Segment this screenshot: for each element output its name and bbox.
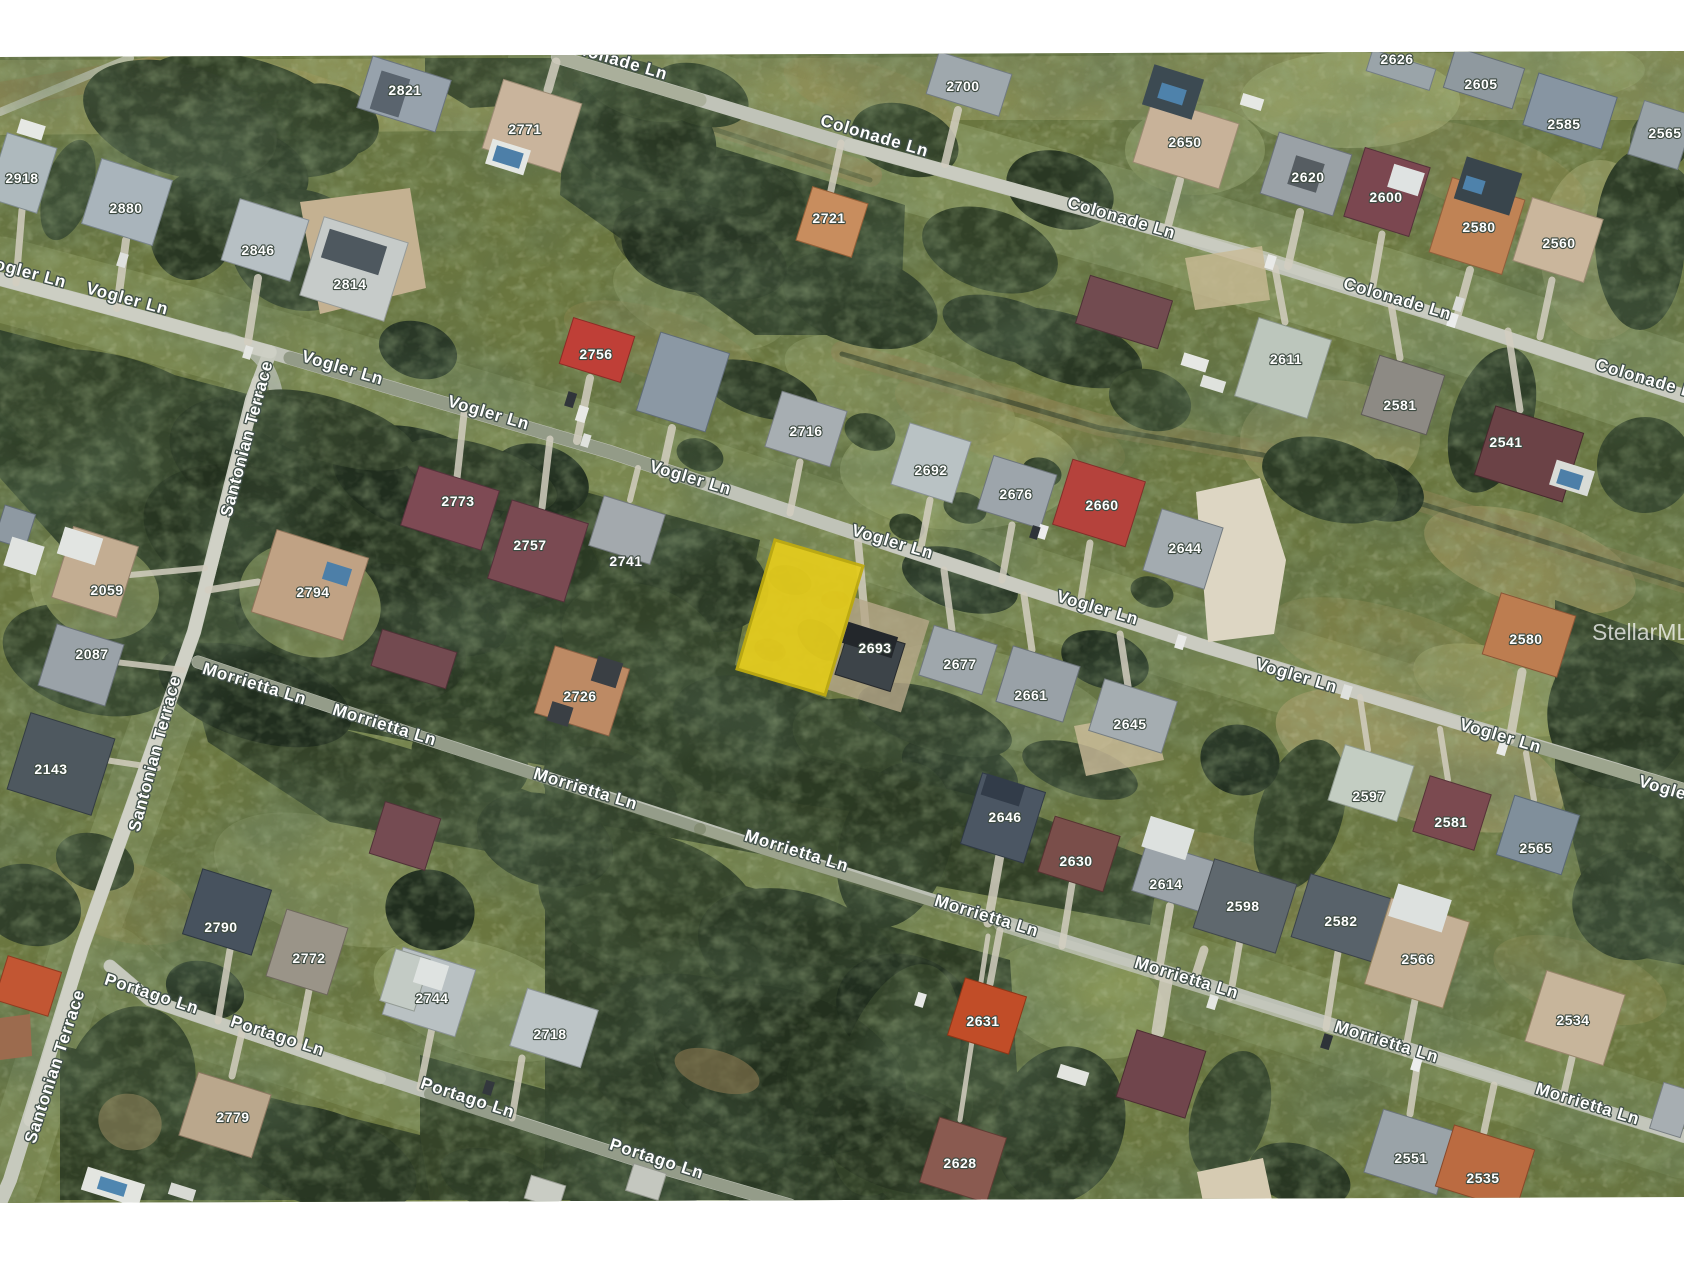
svg-text:2565: 2565 — [1519, 840, 1552, 856]
svg-text:2585: 2585 — [1547, 116, 1580, 132]
svg-text:2582: 2582 — [1324, 913, 1357, 929]
svg-text:2628: 2628 — [943, 1155, 976, 1171]
svg-text:2580: 2580 — [1462, 219, 1495, 235]
svg-text:2772: 2772 — [292, 950, 325, 966]
svg-text:2757: 2757 — [513, 537, 546, 553]
svg-text:2614: 2614 — [1149, 876, 1182, 892]
svg-text:2794: 2794 — [296, 584, 329, 600]
svg-text:2581: 2581 — [1434, 814, 1467, 830]
svg-text:2814: 2814 — [333, 276, 366, 292]
svg-text:2535: 2535 — [1466, 1170, 1499, 1186]
svg-text:2087: 2087 — [75, 646, 108, 662]
svg-text:2676: 2676 — [999, 486, 1032, 502]
svg-text:2846: 2846 — [241, 242, 274, 258]
svg-text:2821: 2821 — [388, 82, 421, 98]
svg-text:2644: 2644 — [1168, 540, 1201, 556]
svg-text:2773: 2773 — [441, 493, 474, 509]
svg-text:2611: 2611 — [1270, 351, 1302, 367]
svg-text:2143: 2143 — [34, 761, 67, 777]
svg-text:2551: 2551 — [1394, 1150, 1427, 1166]
svg-text:StellarMLS: StellarMLS — [1592, 619, 1684, 645]
svg-text:2646: 2646 — [988, 809, 1021, 825]
svg-text:2718: 2718 — [533, 1026, 566, 1042]
svg-text:2661: 2661 — [1014, 687, 1047, 703]
svg-text:2566: 2566 — [1401, 951, 1434, 967]
svg-text:2631: 2631 — [966, 1013, 999, 1029]
svg-text:2581: 2581 — [1383, 397, 1416, 413]
svg-text:2600: 2600 — [1369, 189, 1402, 205]
svg-text:2918: 2918 — [5, 170, 38, 186]
svg-text:2790: 2790 — [204, 919, 237, 935]
svg-text:2692: 2692 — [914, 462, 947, 478]
svg-text:2597: 2597 — [1352, 788, 1385, 804]
svg-text:2580: 2580 — [1509, 631, 1542, 647]
svg-text:2626: 2626 — [1380, 51, 1413, 67]
svg-text:2598: 2598 — [1226, 898, 1259, 914]
svg-text:2660: 2660 — [1085, 497, 1118, 513]
svg-text:2721: 2721 — [812, 210, 845, 226]
svg-text:2650: 2650 — [1168, 134, 1201, 150]
svg-text:2560: 2560 — [1542, 235, 1575, 251]
svg-text:2630: 2630 — [1059, 853, 1092, 869]
svg-text:2677: 2677 — [943, 656, 976, 672]
svg-text:2645: 2645 — [1113, 716, 1146, 732]
svg-text:2693: 2693 — [858, 640, 891, 656]
svg-text:2565: 2565 — [1648, 125, 1681, 141]
svg-text:2779: 2779 — [216, 1109, 249, 1125]
svg-text:2741: 2741 — [609, 553, 642, 569]
svg-text:2880: 2880 — [109, 200, 142, 216]
svg-text:2726: 2726 — [563, 688, 596, 704]
svg-text:2534: 2534 — [1556, 1012, 1589, 1028]
svg-text:2059: 2059 — [90, 582, 123, 598]
svg-text:2756: 2756 — [579, 346, 612, 362]
svg-text:2771: 2771 — [508, 121, 541, 137]
svg-text:2605: 2605 — [1464, 76, 1497, 92]
svg-text:2700: 2700 — [946, 78, 979, 94]
svg-text:2744: 2744 — [415, 990, 448, 1006]
svg-text:2716: 2716 — [789, 423, 822, 439]
svg-text:2620: 2620 — [1291, 169, 1324, 185]
svg-text:2541: 2541 — [1489, 434, 1522, 450]
